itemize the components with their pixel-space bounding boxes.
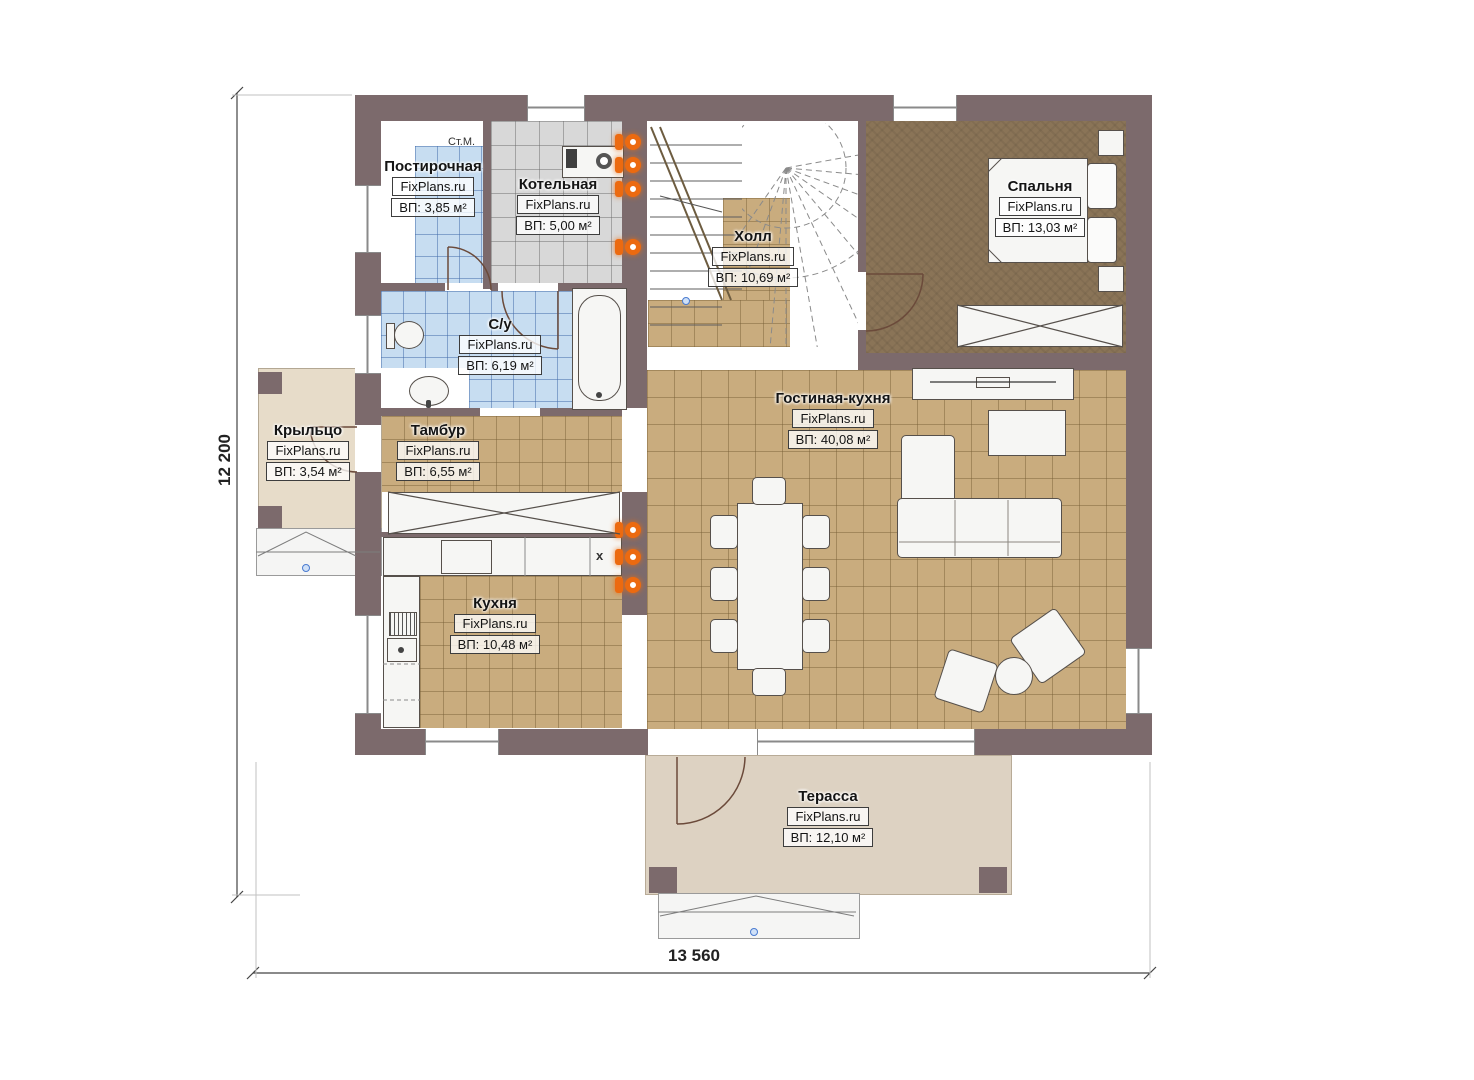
room-name: Крыльцо: [274, 422, 342, 439]
brand-watermark: FixPlans.ru: [712, 247, 793, 266]
kitchen-sink-drain: [398, 647, 404, 653]
room-area: ВП: 3,85 м²: [391, 198, 474, 217]
room-label-kitchen: Кухня FixPlans.ru ВП: 10,48 м²: [435, 595, 555, 654]
floor-plan-canvas: Постирочная FixPlans.ru ВП: 3,85 м² Коте…: [0, 0, 1474, 1080]
terrace-steps: [658, 893, 860, 939]
tv: [976, 377, 1010, 388]
room-name: Терасса: [798, 788, 857, 805]
dining-chair: [802, 567, 830, 601]
wall-top: [355, 95, 1152, 121]
room-name: Котельная: [519, 176, 598, 193]
room-area: ВП: 6,55 м²: [396, 462, 479, 481]
sink-tap: [426, 400, 431, 408]
room-name: Кухня: [473, 595, 517, 612]
brand-watermark: FixPlans.ru: [459, 335, 540, 354]
sofa-body: [897, 498, 1062, 558]
dining-chair: [802, 515, 830, 549]
hall-floor: [648, 300, 790, 347]
sofa-chaise: [901, 435, 955, 507]
room-label-boiler: Котельная FixPlans.ru ВП: 5,00 м²: [498, 176, 618, 235]
room-area: ВП: 40,08 м²: [788, 430, 879, 449]
brand-watermark: FixPlans.ru: [792, 409, 873, 428]
radiator-icon: [615, 239, 641, 255]
nightstand: [1098, 266, 1124, 292]
wall-hall-bedroom-lower: [858, 330, 866, 353]
fridge: [389, 612, 417, 636]
brand-watermark: FixPlans.ru: [787, 807, 868, 826]
room-area: ВП: 13,03 м²: [995, 218, 1086, 237]
room-area: ВП: 12,10 м²: [783, 828, 874, 847]
kitchen-counter-top: [383, 537, 622, 576]
radiator-icon: [615, 181, 641, 197]
brand-watermark: FixPlans.ru: [999, 197, 1080, 216]
dining-chair: [710, 515, 738, 549]
room-label-porch: Крыльцо FixPlans.ru ВП: 3,54 м²: [248, 422, 368, 481]
window-left-kitchen: [355, 615, 381, 714]
wall-bath-vestibule-left: [381, 408, 480, 416]
terrace-post: [979, 867, 1007, 893]
porch-post: [258, 506, 282, 528]
room-label-bedroom: Спальня FixPlans.ru ВП: 13,03 м²: [980, 178, 1100, 237]
dining-table: [737, 503, 803, 670]
wall-hall-bedroom-upper: [858, 121, 866, 272]
window-right-living: [1126, 648, 1152, 714]
room-area: ВП: 10,69 м²: [708, 268, 799, 287]
room-name: Холл: [734, 228, 772, 245]
terrace-post: [649, 867, 677, 893]
radiator-icon: [615, 134, 641, 150]
wall-laundry-bath: [381, 283, 445, 291]
kitchen-sink-mark: x: [596, 548, 603, 563]
window-bottom-living: [757, 729, 975, 755]
coffee-table: [988, 410, 1066, 456]
bedroom-wardrobe: [957, 305, 1123, 347]
room-name: Постирочная: [384, 158, 481, 175]
boiler-unit: [566, 149, 577, 168]
room-label-vestibule: Тамбур FixPlans.ru ВП: 6,55 м²: [378, 422, 498, 481]
dimension-width: 13 560: [668, 946, 720, 966]
marker-dot: [750, 928, 758, 936]
brand-watermark: FixPlans.ru: [517, 195, 598, 214]
radiator-icon: [615, 549, 641, 565]
radiator-icon: [615, 522, 641, 538]
dining-chair: [752, 668, 786, 696]
room-name: Гостиная-кухня: [776, 390, 891, 407]
window-left-bathroom: [355, 315, 381, 374]
brand-watermark: FixPlans.ru: [454, 614, 535, 633]
room-label-terrace: Терасса FixPlans.ru ВП: 12,10 м²: [768, 788, 888, 847]
radiator-icon: [615, 157, 641, 173]
brand-watermark: FixPlans.ru: [392, 177, 473, 196]
dining-chair: [710, 567, 738, 601]
washing-machine-label: Ст.М.: [448, 136, 475, 148]
brand-watermark: FixPlans.ru: [267, 441, 348, 460]
stove: [441, 540, 492, 574]
boiler-sink: [596, 153, 612, 169]
porch-post: [258, 372, 282, 394]
radiator-icon: [615, 577, 641, 593]
nightstand: [1098, 130, 1124, 156]
bathtub-drain: [596, 392, 602, 398]
window-top-boiler: [527, 95, 585, 121]
dining-chair: [710, 619, 738, 653]
window-top-bedroom: [893, 95, 957, 121]
wall-post: [491, 283, 498, 291]
marker-dot: [302, 564, 310, 572]
brand-watermark: FixPlans.ru: [397, 441, 478, 460]
toilet-bowl: [394, 321, 424, 349]
dimension-height: 12 200: [215, 420, 235, 500]
room-area: ВП: 3,54 м²: [266, 462, 349, 481]
vestibule-wardrobe: [388, 492, 620, 534]
room-area: ВП: 10,48 м²: [450, 635, 541, 654]
room-label-living: Гостиная-кухня FixPlans.ru ВП: 40,08 м²: [766, 390, 900, 449]
door-opening-terrace: [648, 729, 757, 755]
room-label-bathroom: С/у FixPlans.ru ВП: 6,19 м²: [440, 316, 560, 375]
room-area: ВП: 6,19 м²: [458, 356, 541, 375]
room-name: Спальня: [1008, 178, 1073, 195]
bathtub-basin: [578, 295, 621, 401]
room-label-laundry: Постирочная FixPlans.ru ВП: 3,85 м²: [373, 158, 493, 217]
room-name: Тамбур: [411, 422, 465, 439]
room-area: ВП: 5,00 м²: [516, 216, 599, 235]
dining-chair: [752, 477, 786, 505]
window-bottom-kitchen: [425, 729, 499, 755]
room-label-hall: Холл FixPlans.ru ВП: 10,69 м²: [693, 228, 813, 287]
marker-dot: [682, 297, 690, 305]
side-table: [995, 657, 1033, 695]
room-name: С/у: [488, 316, 511, 333]
dining-chair: [802, 619, 830, 653]
